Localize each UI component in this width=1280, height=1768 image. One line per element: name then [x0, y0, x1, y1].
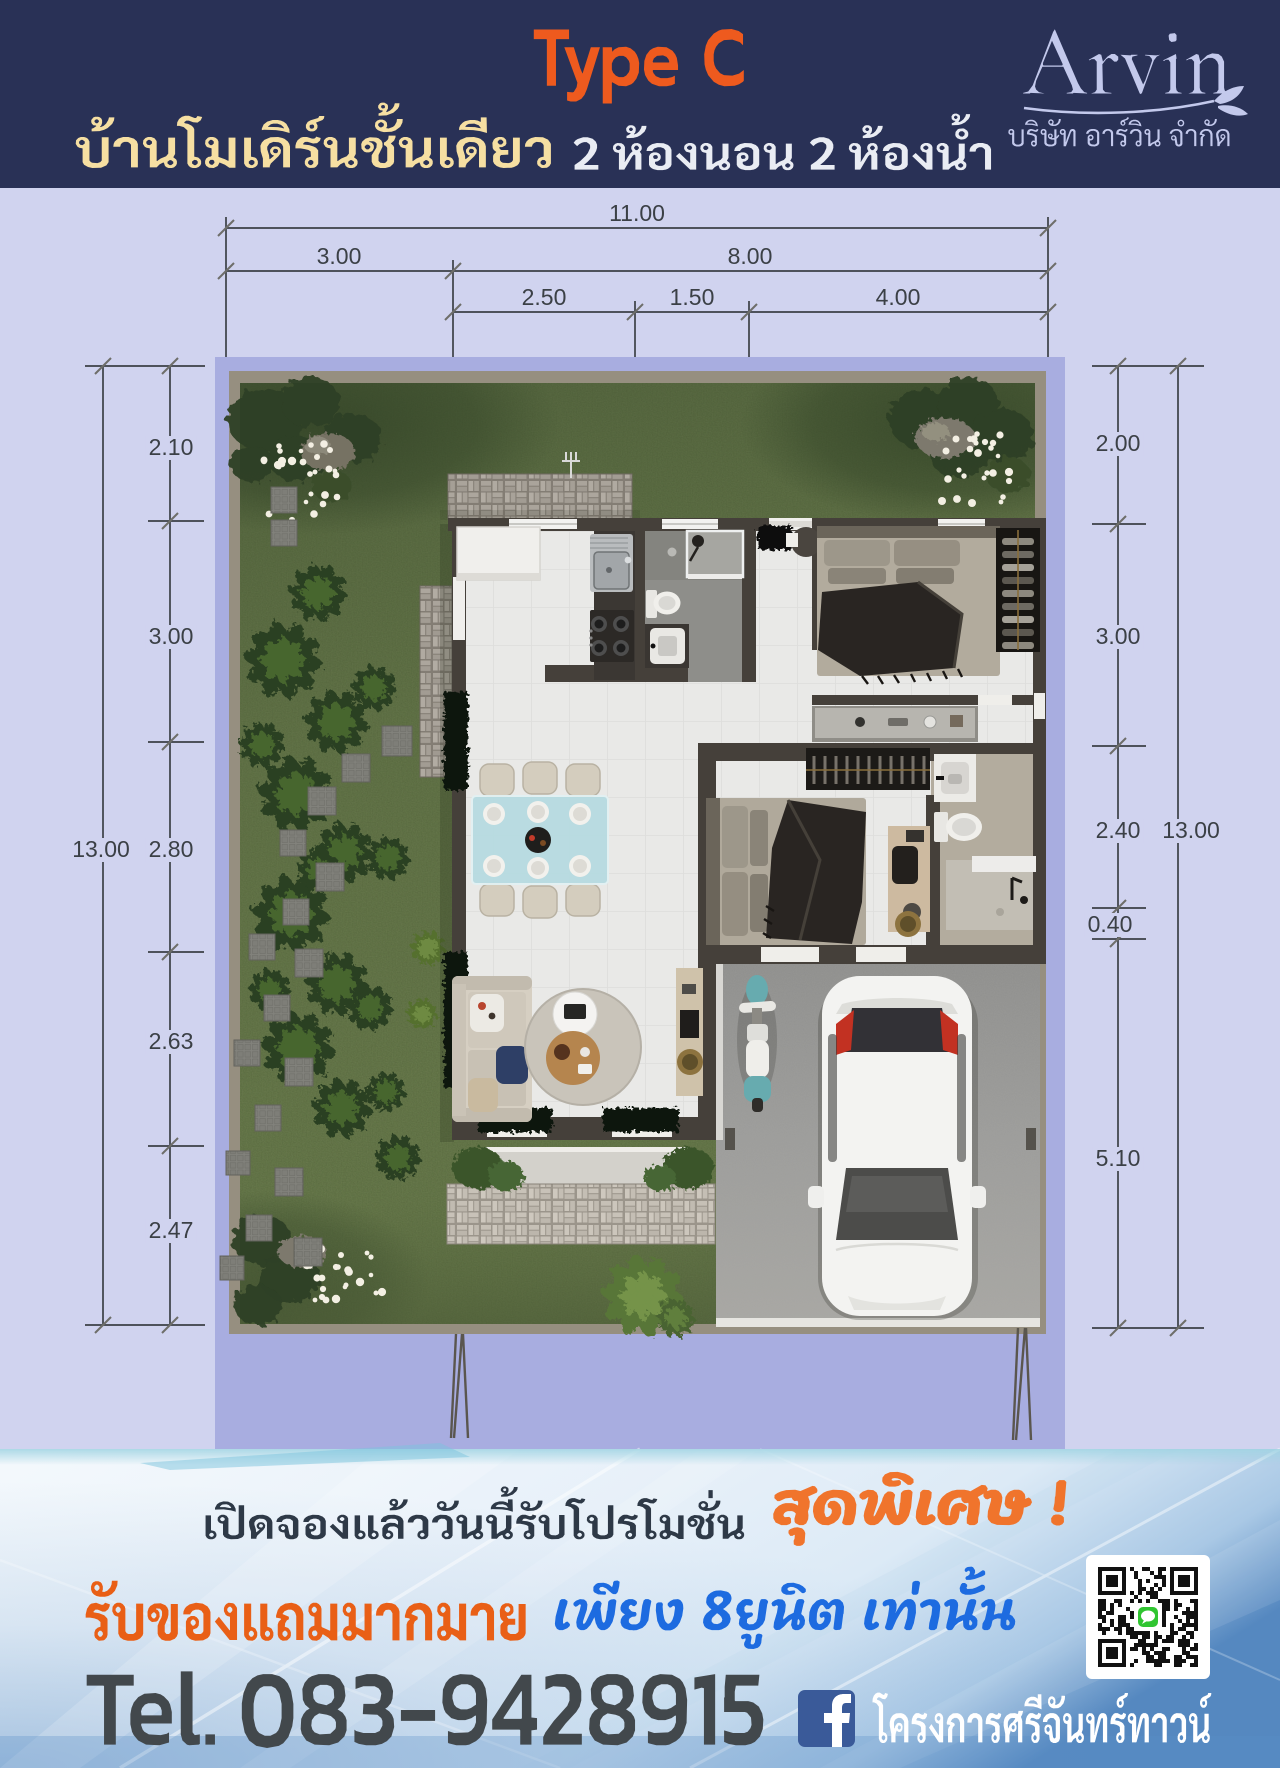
svg-text:2.63: 2.63 — [149, 1028, 194, 1054]
svg-text:2.00: 2.00 — [1096, 430, 1141, 456]
svg-text:2.40: 2.40 — [1096, 817, 1141, 843]
svg-text:2.47: 2.47 — [149, 1217, 194, 1243]
svg-text:5.10: 5.10 — [1096, 1145, 1141, 1171]
svg-text:8.00: 8.00 — [728, 243, 773, 269]
svg-text:2.80: 2.80 — [149, 836, 194, 862]
svg-text:1.50: 1.50 — [670, 284, 715, 310]
svg-text:13.00: 13.00 — [72, 836, 130, 862]
svg-text:3.00: 3.00 — [1096, 623, 1141, 649]
svg-text:13.00: 13.00 — [1162, 817, 1220, 843]
svg-text:2.50: 2.50 — [522, 284, 567, 310]
svg-text:11.00: 11.00 — [609, 200, 665, 226]
svg-text:2.10: 2.10 — [149, 434, 194, 460]
svg-text:3.00: 3.00 — [317, 243, 362, 269]
svg-text:3.00: 3.00 — [149, 623, 194, 649]
svg-text:0.40: 0.40 — [1088, 911, 1133, 937]
svg-text:4.00: 4.00 — [876, 284, 921, 310]
